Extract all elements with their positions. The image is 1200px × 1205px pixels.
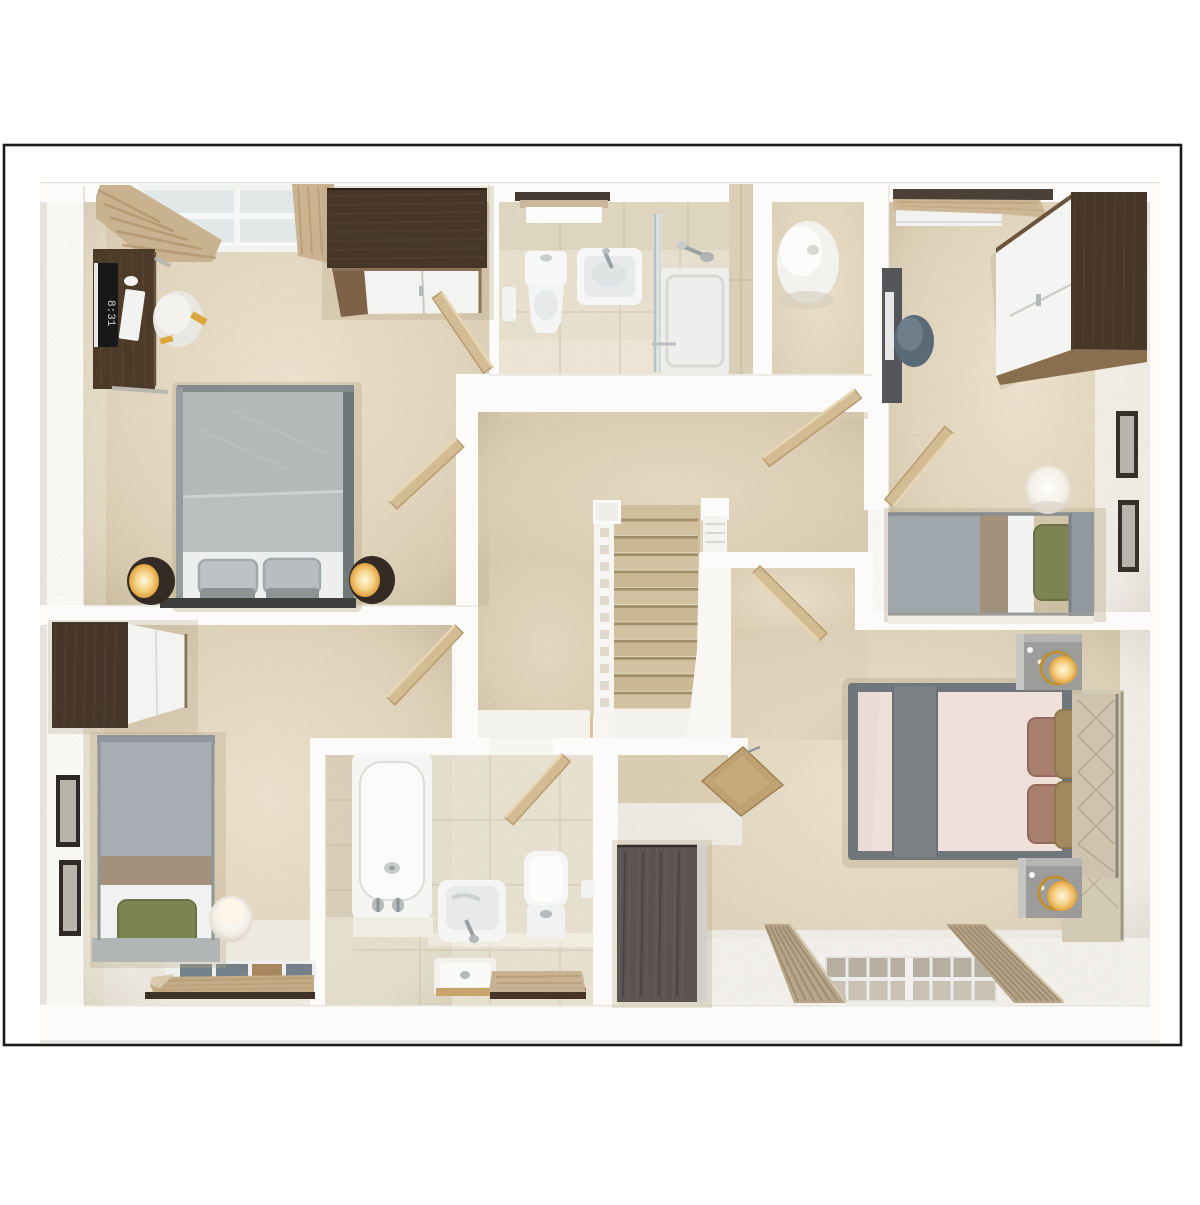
svg-text:8:31: 8:31 <box>104 300 116 327</box>
